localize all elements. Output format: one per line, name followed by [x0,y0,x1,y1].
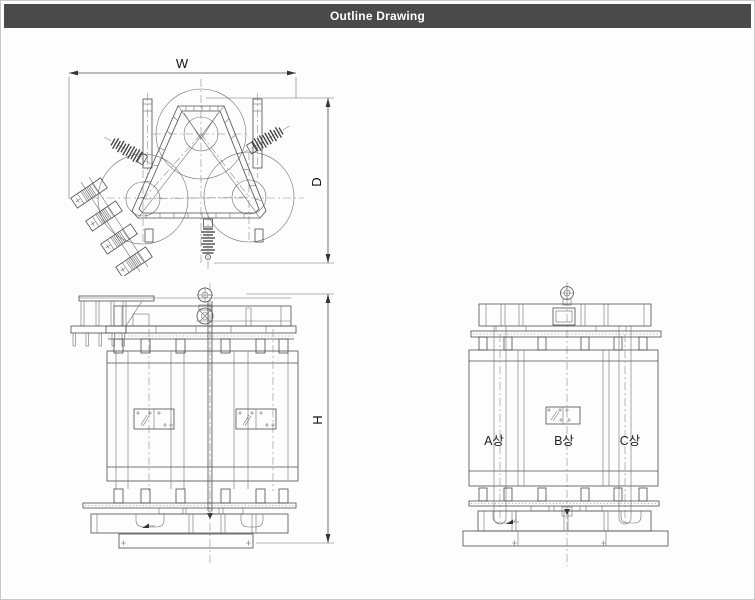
centerlines [91,79,304,266]
dim-label-h: H [310,415,325,424]
dim-label-d: D [309,177,324,186]
bottom-structure [83,481,296,548]
side-view-drawing: A상 B상 C상 [436,279,686,569]
dimension-depth: D [206,98,334,263]
outline-drawing-page: Outline Drawing W D [0,0,755,600]
winding-circles [98,89,294,244]
core-coil-body [107,301,298,519]
nameplate-right [236,409,276,429]
page-title: Outline Drawing [330,9,425,23]
top-view-drawing: W D [56,51,346,276]
phase-label-a: A상 [484,434,504,448]
bushing-bottom [201,213,215,269]
bushing-right [238,120,293,160]
top-clamps [479,337,647,350]
top-beam [471,304,661,337]
dim-label-w: W [176,56,189,71]
core-coil-body [469,326,658,524]
tie-rod-posts [143,93,263,242]
phase-label-b: B상 [554,434,574,448]
front-view-drawing: H [56,279,346,571]
nameplate-left [134,409,174,429]
nameplate [546,407,580,424]
phase-label-c: C상 [620,434,641,448]
title-bar: Outline Drawing [4,4,751,28]
terminal-rack [71,296,154,346]
bushing-left [101,131,156,171]
